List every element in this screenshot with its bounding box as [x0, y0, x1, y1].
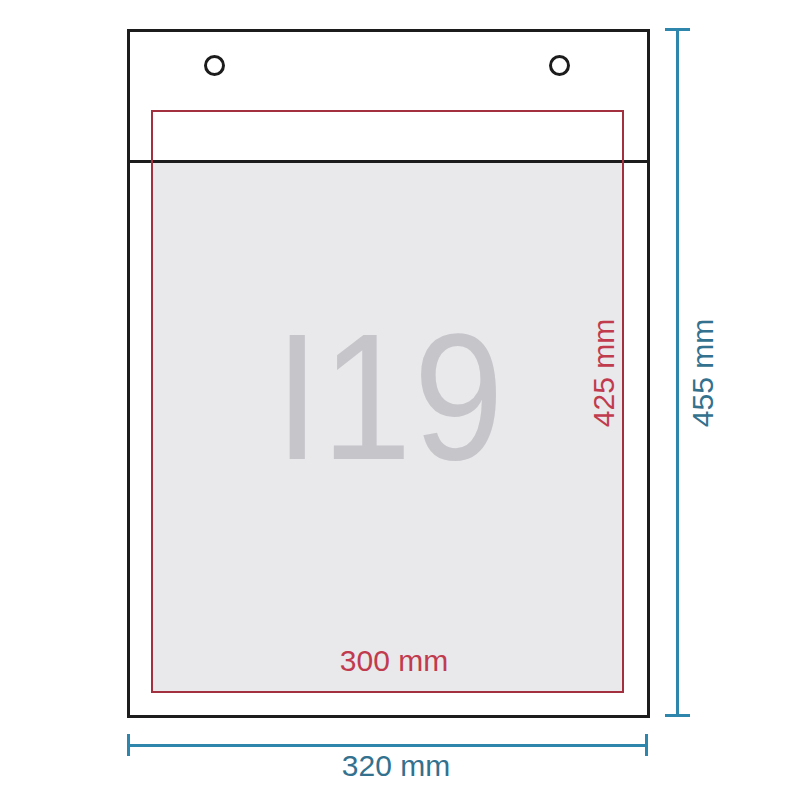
outer-width-dim-cap-left: [127, 734, 130, 756]
hang-hole-right-icon: [549, 55, 570, 76]
outer-height-dim-cap-bottom: [665, 714, 690, 717]
outer-height-dim-line: [676, 29, 679, 717]
outer-height-dim-cap-top: [665, 28, 690, 31]
outer-width-dim-cap-right: [645, 734, 648, 756]
outer-width-dim-line: [128, 744, 648, 747]
envelope-dimension-diagram: I19 300 mm 425 mm 455 mm 320 mm: [0, 0, 800, 800]
inner-height-label: 425 mm: [589, 319, 619, 427]
inner-width-label: 300 mm: [340, 646, 448, 676]
outer-width-label: 320 mm: [342, 751, 450, 781]
outer-height-label: 455 mm: [688, 319, 718, 427]
size-code-watermark: I19: [275, 307, 506, 487]
hang-hole-left-icon: [204, 55, 225, 76]
